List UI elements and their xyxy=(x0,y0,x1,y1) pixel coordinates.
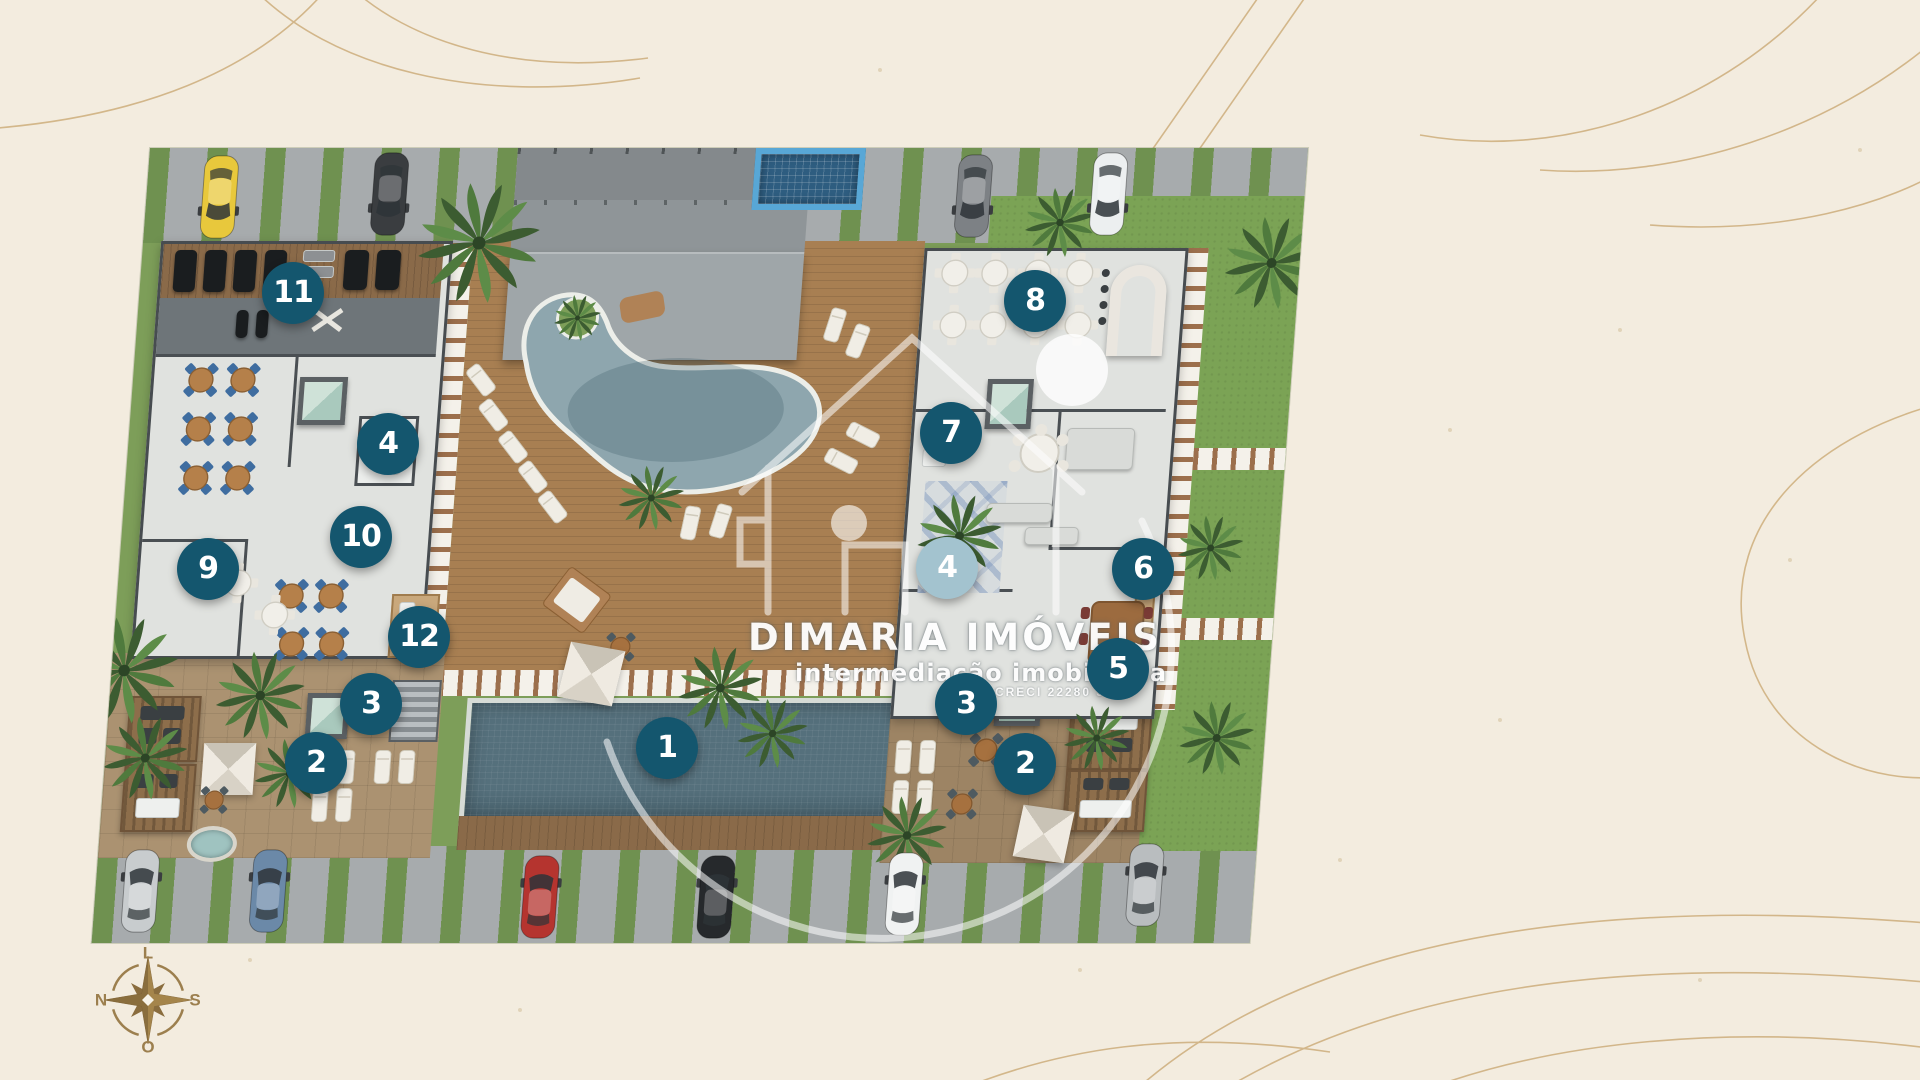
plan-marker-9: 9 xyxy=(177,538,239,600)
plan-marker-3: 3 xyxy=(340,673,402,735)
plan-marker-2: 2 xyxy=(285,732,347,794)
compass-star-shade xyxy=(104,956,148,1044)
plan-marker-4: 4 xyxy=(357,413,419,475)
plan-marker-3: 3 xyxy=(935,673,997,735)
plan-marker-7: 7 xyxy=(920,402,982,464)
plan-marker-4: 4 xyxy=(916,537,978,599)
compass-letter-north: N xyxy=(95,991,107,1010)
plan-marker-8: 8 xyxy=(1004,270,1066,332)
compass-rose: L S O N xyxy=(73,925,223,1075)
plan-marker-6: 6 xyxy=(1112,538,1174,600)
compass-letter-east: L xyxy=(143,944,153,963)
plan-marker-5: 5 xyxy=(1087,638,1149,700)
compass-letter-south: S xyxy=(189,991,200,1010)
plan-marker-12: 12 xyxy=(388,606,450,668)
plan-marker-2: 2 xyxy=(994,733,1056,795)
compass-letter-west: O xyxy=(141,1038,154,1057)
plan-marker-10: 10 xyxy=(330,506,392,568)
plan-marker-11: 11 xyxy=(262,262,324,324)
amenity-markers: 122334456789101112 xyxy=(0,0,1920,1080)
plan-marker-1: 1 xyxy=(636,717,698,779)
floorplan-image: { "watermark": { "brand": "DIMARIA IMÓVE… xyxy=(0,0,1920,1080)
